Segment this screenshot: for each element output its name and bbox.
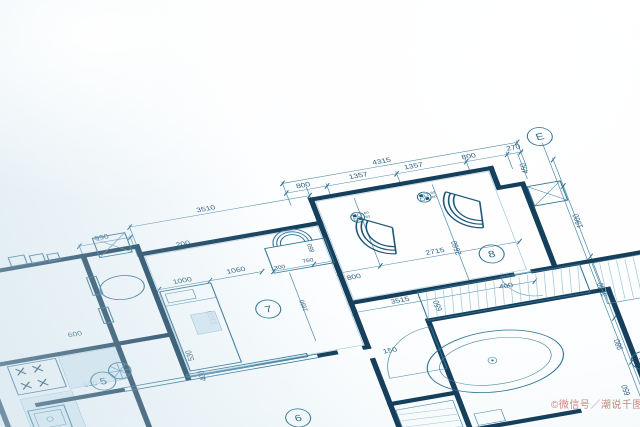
dim-750: 750 bbox=[302, 258, 316, 265]
dim-450: 450 bbox=[517, 162, 531, 174]
svg-text:8: 8 bbox=[487, 249, 497, 260]
bedside-table bbox=[191, 311, 222, 335]
stove bbox=[7, 358, 66, 395]
wardrobe-closet bbox=[417, 264, 590, 321]
dim-1060: 1060 bbox=[225, 265, 246, 276]
dim-600: 600 bbox=[66, 329, 83, 339]
grid-bubble-e: E bbox=[524, 126, 555, 148]
fixture-label: 60 bbox=[363, 211, 369, 215]
floor-plan-drawing: 4315 800 1357 1357 800 270 450 990 3510 … bbox=[0, 69, 640, 427]
dim-1900: 1900 bbox=[570, 213, 585, 228]
room-label-7: 7 bbox=[253, 298, 284, 320]
door-arc-room8 bbox=[501, 271, 543, 301]
svg-text:E: E bbox=[534, 132, 546, 143]
blueprint-photo: 4315 800 1357 1357 800 270 450 990 3510 … bbox=[0, 0, 640, 427]
dim-800-top-left: 800 bbox=[295, 180, 312, 190]
dim-800-top-right: 800 bbox=[460, 151, 477, 161]
fixture-label: 60 bbox=[365, 215, 371, 219]
room-label-6: 6 bbox=[283, 407, 314, 427]
dim-1650: 1650 bbox=[299, 299, 310, 311]
watermark: ©微信号／潮说千图 bbox=[551, 401, 640, 411]
bathtub bbox=[417, 321, 574, 403]
dim-650-closet: 650 bbox=[431, 300, 445, 312]
dim-650-right: 650 bbox=[619, 384, 633, 396]
svg-text:6: 6 bbox=[293, 413, 303, 424]
oval-table bbox=[96, 272, 148, 302]
svg-text:7: 7 bbox=[263, 304, 273, 315]
fan-symbol-2 bbox=[439, 187, 489, 233]
dim-150: 150 bbox=[382, 346, 399, 356]
dim-850: 850 bbox=[307, 243, 317, 253]
dim-800-room8: 800 bbox=[345, 272, 362, 282]
